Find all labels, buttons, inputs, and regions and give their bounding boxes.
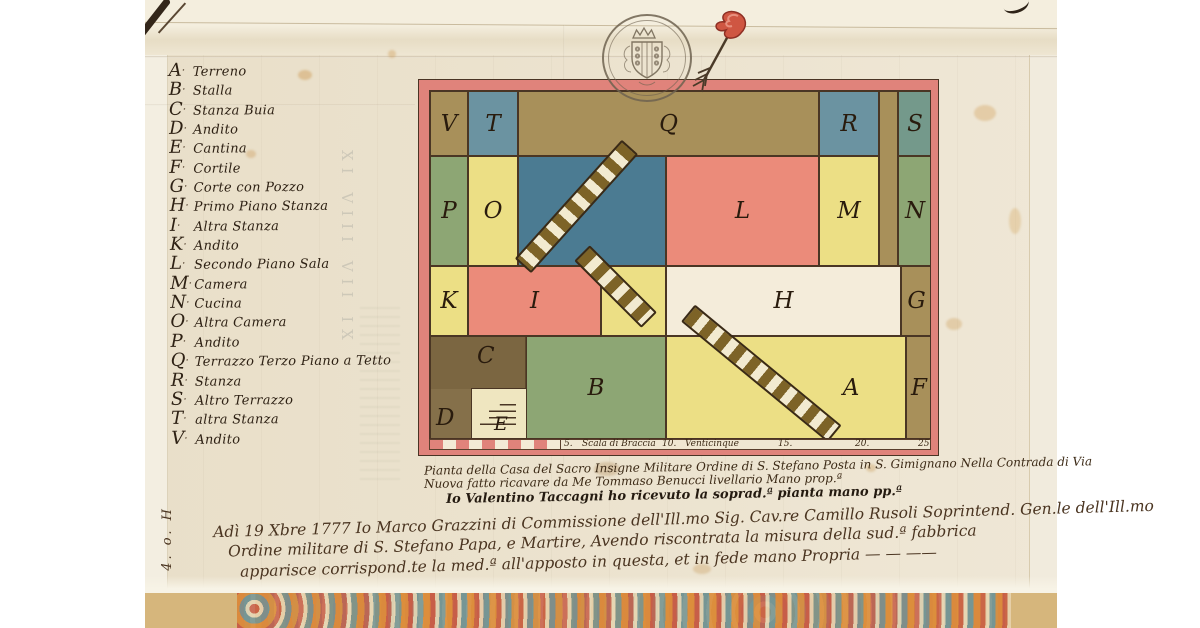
- legend-letter: S: [171, 390, 195, 410]
- room-letter: A: [843, 375, 860, 401]
- room-o: O: [468, 156, 518, 266]
- scale-bar: 5. Scala di Braccia 10. Venticinque 15. …: [429, 439, 931, 450]
- legend-row: GCorte con Pozzo: [169, 175, 424, 196]
- legend-name: Andito: [194, 239, 239, 254]
- room-p: P: [430, 156, 468, 266]
- legend-name: Secondo Piano Sala: [194, 257, 329, 273]
- scale-label: 20.: [855, 439, 869, 449]
- legend-row: SAltro Terrazzo: [171, 388, 426, 409]
- legend-letter: R: [171, 370, 195, 390]
- room-letter: G: [907, 288, 925, 314]
- legend-letter: Q: [171, 351, 195, 371]
- legend-name: Andito: [195, 432, 240, 447]
- legend-name: altra Stanza: [195, 412, 279, 428]
- legend-row: CStanza Buia: [169, 98, 424, 119]
- room-letter: C: [477, 343, 495, 369]
- legend-row: ECantina: [169, 136, 424, 157]
- legend-letter: O: [170, 312, 194, 332]
- scale-label: Scala di Braccia: [582, 439, 656, 449]
- legend-row: OAltra Camera: [170, 311, 425, 332]
- stain: [946, 318, 962, 330]
- legend-name: Andito: [195, 335, 240, 350]
- coat-of-arms-seal-icon: [599, 12, 695, 105]
- room-d-c-block: C D E: [430, 336, 526, 439]
- legend-row: IAltra Stanza: [170, 214, 425, 235]
- legend: ATerreno BStalla CStanza Buia DAndito EC…: [169, 59, 427, 448]
- scale-label: 25: [918, 439, 929, 449]
- legend-letter: I: [170, 215, 194, 235]
- room-v: V: [430, 91, 468, 156]
- stain: [1009, 208, 1021, 234]
- room-g: G: [901, 266, 931, 336]
- legend-letter: G: [169, 177, 193, 197]
- legend-row: KAndito: [170, 233, 425, 254]
- legend-name: Altro Terrazzo: [195, 393, 293, 409]
- legend-row: MCamera: [170, 272, 425, 293]
- room-e: E: [471, 388, 527, 439]
- legend-name: Stanza Buia: [193, 103, 275, 119]
- page-edge-mark: [1001, 0, 1031, 17]
- room-letter: N: [905, 198, 925, 224]
- legend-name: Cucina: [194, 297, 242, 312]
- legend-letter: V: [171, 428, 195, 448]
- legend-name: Stalla: [193, 84, 233, 99]
- legend-row: RStanza: [171, 369, 426, 390]
- legend-letter: E: [169, 138, 193, 158]
- room-letter: O: [484, 198, 503, 224]
- floor-plan: V T Q R S P O L M N K I H G C D: [418, 79, 939, 456]
- room-letter: I: [530, 288, 539, 314]
- legend-name: Cortile: [193, 161, 240, 176]
- legend-name: Terreno: [193, 64, 247, 79]
- legend-name: Cantina: [193, 142, 247, 157]
- legend-name: Primo Piano Stanza: [194, 199, 329, 215]
- plan-interior: V T Q R S P O L M N K I H G C D: [429, 90, 931, 439]
- room-letter: L: [735, 198, 750, 224]
- legend-letter: P: [171, 332, 195, 352]
- legend-letter: F: [169, 157, 193, 177]
- legend-row: ATerreno: [169, 59, 424, 80]
- legend-name: Altra Stanza: [194, 219, 279, 235]
- legend-letter: K: [170, 235, 194, 255]
- legend-name: Corte con Pozzo: [193, 180, 304, 196]
- room-f: F: [906, 336, 931, 439]
- scale-checker: [430, 440, 561, 449]
- legend-row: PAndito: [171, 330, 426, 351]
- legend-name: Camera: [194, 277, 248, 292]
- legend-row: NCucina: [170, 291, 425, 312]
- legend-row: LSecondo Piano Sala: [170, 253, 425, 274]
- legend-letter: C: [169, 99, 193, 119]
- room-b: B: [526, 336, 666, 439]
- legend-letter: N: [170, 293, 194, 313]
- room-k: K: [430, 266, 468, 336]
- legend-name: Terrazzo Terzo Piano a Tetto: [195, 354, 392, 370]
- marbled-endpaper: [145, 593, 1057, 628]
- red-pennant-arrow-icon: [688, 6, 752, 96]
- room-r: R: [819, 91, 879, 156]
- room-t: T: [468, 91, 518, 156]
- legend-letter: M: [170, 274, 194, 294]
- room-i: I: [468, 266, 601, 336]
- endpaper-corner: [1011, 593, 1057, 628]
- legend-row: VAndito: [171, 427, 426, 448]
- room-letter: F: [911, 375, 927, 401]
- room-n: N: [898, 156, 931, 266]
- room-letter: V: [441, 111, 458, 137]
- legend-letter: B: [169, 80, 193, 100]
- room-s: S: [898, 91, 931, 156]
- room-letter: P: [441, 198, 456, 224]
- legend-row: Taltra Stanza: [171, 407, 426, 428]
- legend-letter: L: [170, 254, 194, 274]
- room-letter: D: [436, 405, 454, 431]
- legend-name: Stanza: [195, 374, 242, 389]
- scale-label: 5.: [564, 439, 573, 449]
- legend-row: BStalla: [169, 78, 424, 99]
- margin-mark: 4. o. H: [160, 506, 175, 571]
- legend-row: HPrimo Piano Stanza: [170, 195, 425, 216]
- room-letter: B: [588, 375, 605, 401]
- legend-name: Altra Camera: [194, 316, 286, 332]
- legend-row: FCortile: [169, 156, 424, 177]
- scanned-manuscript-page: XI VIII VII IX ATerreno BStalla CStanza …: [0, 0, 1200, 628]
- legend-letter: A: [169, 61, 193, 81]
- room-letter: E: [494, 413, 508, 435]
- stain: [388, 50, 396, 58]
- room-letter: Q: [659, 111, 678, 137]
- scale-label: 10.: [662, 439, 676, 449]
- room-l: L: [666, 156, 819, 266]
- room-letter: S: [907, 111, 923, 137]
- room-letter: T: [485, 111, 500, 137]
- legend-letter: H: [170, 196, 194, 216]
- legend-name: Andito: [193, 122, 238, 137]
- room-letter: R: [840, 111, 857, 137]
- legend-letter: D: [169, 119, 193, 139]
- room-letter: H: [773, 288, 793, 314]
- stain: [974, 105, 996, 121]
- corridor-strip: [879, 91, 898, 266]
- scale-label: Venticinque: [685, 439, 739, 449]
- legend-row: QTerrazzo Terzo Piano a Tetto: [171, 349, 426, 370]
- room-m: M: [819, 156, 879, 266]
- endpaper-corner: [145, 593, 237, 628]
- room-letter: K: [440, 288, 457, 314]
- room-letter: M: [837, 198, 861, 224]
- scale-label: 15.: [778, 439, 792, 449]
- legend-row: DAndito: [169, 117, 424, 138]
- legend-letter: T: [171, 409, 195, 429]
